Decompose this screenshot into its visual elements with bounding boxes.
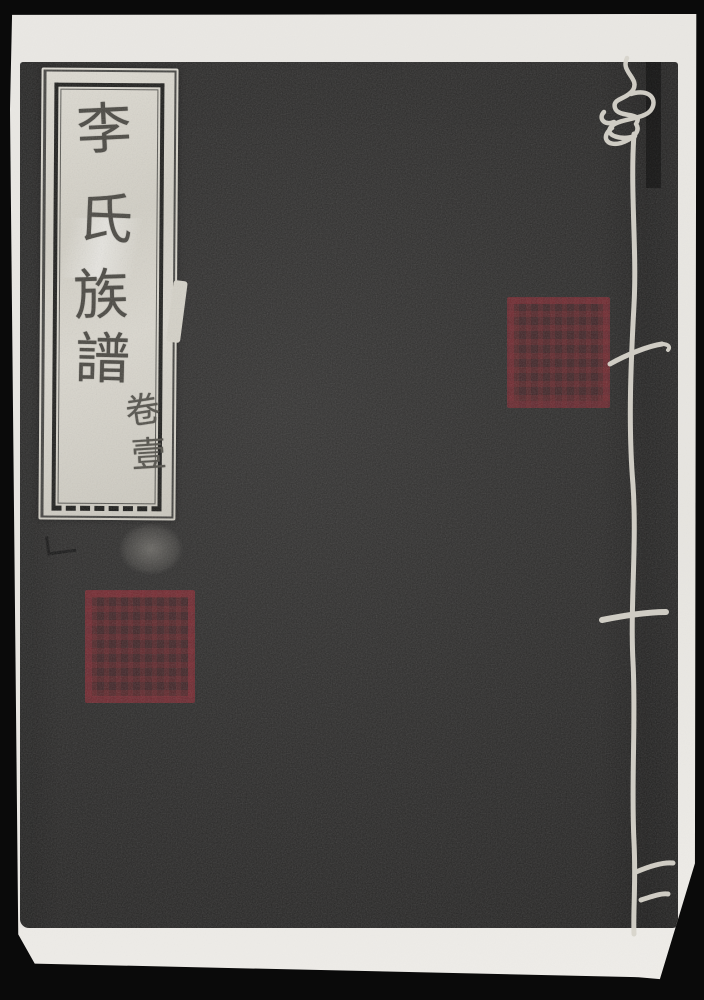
scan-background: { "photo": { "kind": "scanned book cover… [0, 0, 704, 1000]
seal-stamp-bottom [85, 590, 195, 703]
volume-char-juan: 卷 [119, 391, 168, 432]
title-label: 李 氏 族 譜 卷 壹 [38, 68, 178, 521]
title-char-zu: 族 [65, 267, 137, 324]
book-cover: 李 氏 族 譜 卷 壹 [20, 62, 678, 928]
title-char-shi: 氏 [69, 191, 141, 249]
glue-smudge [108, 514, 194, 584]
title-char-pu: 譜 [67, 331, 138, 388]
scanned-photo: 李 氏 族 譜 卷 壹 [10, 12, 697, 985]
ink-mark [45, 533, 76, 556]
title-char-li: 李 [68, 100, 140, 158]
volume-char-yi: 壹 [126, 437, 172, 475]
seal-stamp-top [507, 297, 610, 408]
